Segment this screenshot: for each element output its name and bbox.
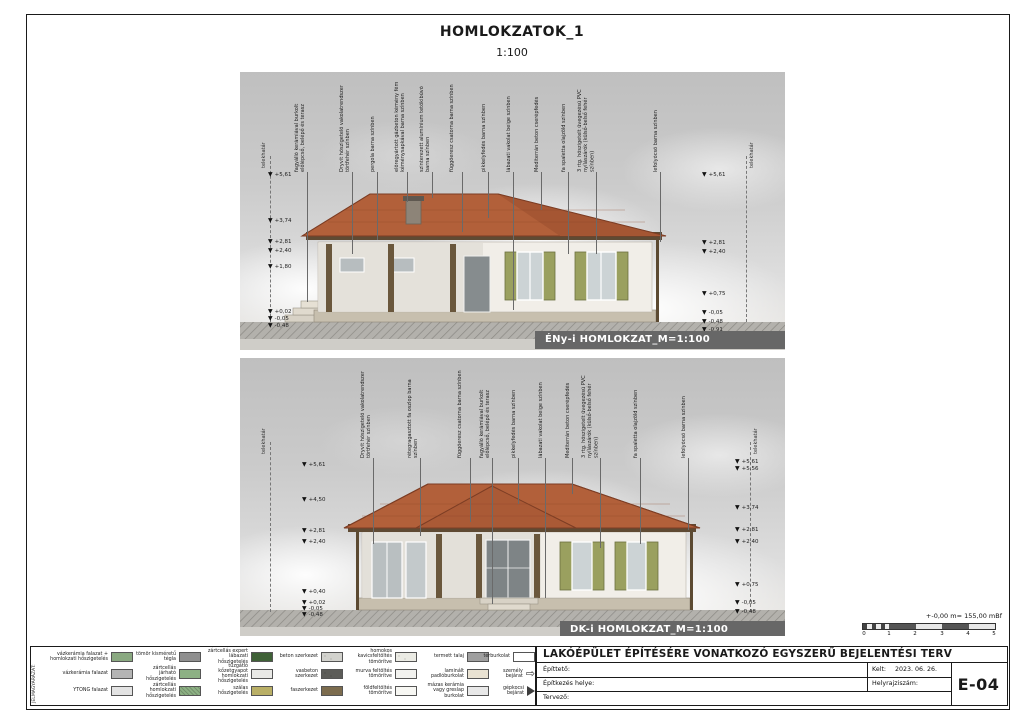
annotation-label: lábazati vakolat beige színben — [538, 364, 545, 458]
leader-line — [470, 458, 471, 522]
level-marker-icon: ▼ — [735, 609, 740, 615]
leader-line — [545, 458, 546, 598]
level-marker-icon: ▼ — [302, 612, 307, 618]
level-marker-icon: ▼ — [302, 589, 307, 595]
legend-swatch — [321, 669, 343, 679]
legend-item-label: termett talaj — [419, 654, 464, 659]
elevation-panel-eny: fagyálló kerámiával burkolt előlépcső, b… — [240, 72, 785, 350]
level-marker: ▼-0,48 — [302, 612, 323, 618]
legend-item: térburkolat — [491, 650, 535, 664]
level-marker: ▼+1,80 — [268, 264, 291, 270]
level-marker: ▼+2,40 — [735, 539, 758, 545]
legend-item: vázkerámia falazat — [39, 667, 133, 681]
legend-swatch — [251, 652, 273, 662]
legend-swatch — [111, 652, 133, 662]
legend-swatch — [321, 686, 343, 696]
leader-line — [432, 172, 433, 198]
annotation-label: lábazati vakolat beige színben — [506, 78, 513, 172]
level-marker-icon: ▼ — [702, 249, 707, 255]
annotation-label: Dryvit hőszigetelő vakolatrendszer törtf… — [339, 78, 352, 172]
level-marker: ▼+5,56 — [735, 466, 758, 472]
level-marker: ▼+2,81 — [302, 528, 325, 534]
legend-item-label: vázkerámia falazat + homlokzati hősziget… — [39, 652, 108, 662]
level-marker: ▼+3,74 — [268, 218, 291, 224]
annotation-label: fa spaletta olajzöld színben — [561, 78, 568, 172]
legend-item-label: gépkocsi bejárat — [491, 686, 524, 696]
level-marker-icon: ▼ — [268, 172, 273, 178]
legend-item: tömör kisméretű tégla — [135, 650, 201, 664]
level-marker-icon: ▼ — [702, 172, 707, 178]
leader-line — [600, 458, 601, 548]
annotation-label: szinterezett alumínium tetőkibúvó barna … — [419, 78, 432, 172]
legend-swatch — [513, 652, 535, 662]
annotation-label: fagyálló kerámiával burkolt előlépcső, b… — [294, 78, 307, 172]
level-marker: ▼+4,50 — [302, 497, 325, 503]
steps — [480, 598, 538, 610]
leader-line — [307, 172, 308, 302]
legend-item-label: vasbeton szerkezet — [275, 669, 318, 679]
legend-swatch — [395, 652, 417, 662]
level-marker-icon: ▼ — [302, 497, 307, 503]
property-line — [270, 442, 271, 612]
level-marker: ▼-0,48 — [735, 609, 756, 615]
legend-item-label: személy bejárat — [491, 669, 523, 679]
legend-item-label: homokos kavicsfeltöltés tömörítve — [345, 649, 392, 665]
level-marker-icon: ▼ — [268, 239, 273, 245]
legend-item: zártcellás homlokzati hőszigetelés — [135, 684, 201, 698]
leader-line — [373, 458, 374, 544]
legend-item-label: zártcellás expert lábazati hőszigetelés — [203, 649, 248, 665]
leader-line — [352, 172, 353, 254]
annotation-label: fagyálló kerámiával burkolt előlépcső, b… — [479, 364, 492, 458]
project-title: LAKÓÉPÜLET ÉPÍTÉSÉRE VONATKOZÓ EGYSZERŰ … — [537, 647, 1007, 663]
legend-item: YTONG falazat — [39, 684, 133, 698]
legend-item: faszerkezet — [275, 684, 343, 698]
legend-item-label: földfeltöltés tömörítve — [345, 686, 392, 696]
elevation-caption: ÉNy-i HOMLOKZAT_M=1:100 — [535, 331, 785, 349]
legend-item-label: faszerkezet — [275, 688, 318, 693]
level-marker: ▼+2,40 — [302, 539, 325, 545]
level-marker: ▼-0,48 — [268, 323, 289, 329]
level-marker: ▼-0,48 — [702, 319, 723, 325]
level-marker: ▼+2,40 — [268, 248, 291, 254]
scale-bar: +-0,00 m= 155,00 mBf 0 1 2 3 4 5 — [862, 612, 1002, 638]
legend-item: zártcellás expert lábazati hőszigetelés — [203, 650, 273, 664]
level-marker-icon: ▼ — [302, 462, 307, 468]
person-entrance-icon: ⇨ — [526, 669, 535, 679]
legend-item-label: laminált padlóburkolat — [419, 669, 464, 679]
downpipe — [656, 240, 659, 322]
field-label-kelt: Kelt: — [872, 666, 886, 673]
annotation-label: függőeresz csatorna barna színben — [457, 364, 470, 458]
level-marker-icon: ▼ — [735, 505, 740, 511]
level-marker: ▼+0,40 — [302, 589, 325, 595]
datum-note: +-0,00 m= 155,00 mBf — [862, 612, 1002, 620]
level-marker-icon: ▼ — [702, 310, 707, 316]
elevation-caption: DK-i HOMLOKZAT_M=1:100 — [560, 621, 785, 636]
level-marker: ▼+0,75 — [735, 582, 758, 588]
legend-swatch — [179, 669, 201, 679]
legend-item: mázas kerámia vagy greslap burkolat — [419, 684, 489, 698]
annotation-label: Mediterrán beton cserépfedés — [534, 78, 541, 172]
legend-item-label: tűzgátló kőzetgyapot homlokzati hősziget… — [203, 664, 248, 685]
level-marker: ▼-0,05 — [702, 310, 723, 316]
level-marker-icon: ▼ — [735, 527, 740, 533]
leader-line — [541, 172, 542, 210]
legend-item-label: zártcellás homlokzati hőszigetelés — [135, 683, 176, 699]
legend-item: földfeltöltés tömörítve — [345, 684, 417, 698]
legend-item: tűzgátló kőzetgyapot homlokzati hősziget… — [203, 667, 273, 681]
drawing-sheet: HOMLOKZATOK_1 1:100 — [0, 0, 1024, 724]
annotation-label: pikkelyfedés barna színben — [511, 364, 518, 458]
roof — [302, 194, 666, 240]
level-marker-icon: ▼ — [268, 218, 273, 224]
legend-swatch — [395, 686, 417, 696]
leader-line — [688, 458, 689, 530]
annotation-label: előregyártott gázbeton kémény fém kémény… — [394, 78, 407, 172]
level-marker-icon: ▼ — [302, 539, 307, 545]
legend-item: zártcellás járható hőszigetelés — [135, 667, 201, 681]
level-marker-icon: ▼ — [702, 319, 707, 325]
legend-item-label: szálas hőszigetelés — [203, 686, 248, 696]
title-block: LAKÓÉPÜLET ÉPÍTÉSÉRE VONATKOZÓ EGYSZERŰ … — [536, 646, 1008, 706]
leader-line — [488, 172, 489, 218]
leader-line — [420, 458, 421, 536]
leader-line — [660, 172, 661, 242]
leader-line — [462, 172, 463, 232]
annotation-label: lefolyócső barna színben — [653, 78, 660, 172]
legend-item: vasbeton szerkezet — [275, 667, 343, 681]
annotation-label: 3 rtg. hőszigetelt üvegezésű PVC nyílász… — [581, 364, 600, 458]
leader-line — [492, 458, 493, 604]
legend-item: murva feltöltés tömörítve — [345, 667, 417, 681]
level-marker: ▼+5,61 — [302, 462, 325, 468]
level-marker-icon: ▼ — [268, 323, 273, 329]
legend-item: beton szerkezet — [275, 650, 343, 664]
legend-swatch — [111, 669, 133, 679]
legend-item: szálas hőszigetelés — [203, 684, 273, 698]
level-marker-icon: ▼ — [735, 600, 740, 606]
legend-item-label: beton szerkezet — [275, 654, 318, 659]
property-line-label: telekhatár — [261, 134, 267, 168]
leader-line — [640, 458, 641, 544]
leader-line — [596, 172, 597, 254]
leader-line — [513, 172, 514, 310]
level-marker-icon: ▼ — [702, 291, 707, 297]
legend-swatch — [467, 669, 489, 679]
page-title: HOMLOKZATOK_1 — [0, 24, 1024, 40]
legend-item-label: zártcellás járható hőszigetelés — [135, 666, 176, 682]
level-marker: ▼+2,81 — [735, 527, 758, 533]
legend-swatch — [251, 686, 273, 696]
legend-item-label: YTONG falazat — [39, 688, 108, 693]
legend-item: gépkocsi bejárat — [491, 684, 535, 698]
property-line — [746, 156, 747, 322]
level-marker-icon: ▼ — [302, 528, 307, 534]
annotation-label: pikkelyfedés barna színben — [481, 78, 488, 172]
legend-swatch — [395, 669, 417, 679]
level-marker: ▼+3,74 — [735, 505, 758, 511]
level-marker: ▼+5,61 — [268, 172, 291, 178]
legend-swatch — [179, 686, 201, 696]
legend-item-label: vázkerámia falazat — [39, 671, 108, 676]
field-label-epitteto: Építtető: — [543, 666, 570, 673]
annotation-label: 3 rtg. hőszigetelt üvegezésű PVC nyílász… — [577, 78, 596, 172]
leader-line — [377, 172, 378, 240]
level-marker-icon: ▼ — [702, 240, 707, 246]
leader-line — [407, 172, 408, 202]
annotation-label: Mediterrán beton cserépfedés — [565, 364, 572, 458]
property-line-label: telekhatár — [261, 420, 267, 454]
legend-item-label: mázas kerámia vagy greslap burkolat — [419, 683, 464, 699]
level-marker: ▼+2,81 — [702, 240, 725, 246]
legend-item-label: térburkolat — [483, 654, 510, 659]
graphic-scale — [862, 623, 996, 630]
legend-swatch — [251, 669, 273, 679]
level-marker-icon: ▼ — [268, 248, 273, 254]
scale-ticks: 0 1 2 3 4 5 — [862, 630, 994, 638]
level-marker: ▼-0,05 — [735, 600, 756, 606]
field-label-helye: Építkezés helye: — [543, 680, 594, 687]
roof — [344, 484, 700, 532]
field-label-tervezo: Tervező: — [543, 694, 569, 701]
legend-heading: JELMAGYARÁZAT: — [32, 651, 37, 703]
field-value-kelt: 2023. 06. 26. — [895, 666, 937, 673]
page-scale: 1:100 — [0, 46, 1024, 59]
legend-item: vázkerámia falazat + homlokzati hősziget… — [39, 650, 133, 664]
annotation-label: függőeresz csatorna barna színben — [449, 78, 462, 172]
property-line-label: telekhatár — [753, 420, 759, 454]
annotation-label: rétegragasztott fa oszlop barna színben — [407, 364, 420, 458]
annotation-label: fa spaletta olajzöld színben — [633, 364, 640, 458]
legend-item-label: tömör kisméretű tégla — [135, 652, 176, 662]
level-marker: ▼+2,40 — [702, 249, 725, 255]
legend-swatch — [321, 652, 343, 662]
annotation-label: lefolyócső barna színben — [681, 364, 688, 458]
annotation-label: pergola barna színben — [370, 78, 377, 172]
legend-swatch — [111, 686, 133, 696]
level-marker-icon: ▼ — [735, 582, 740, 588]
legend-item: személy bejárat⇨ — [491, 667, 535, 681]
legend-swatch — [179, 652, 201, 662]
legend: JELMAGYARÁZAT: vázkerámia falazat + homl… — [30, 646, 536, 706]
leader-line — [572, 458, 573, 494]
legend-item-label: murva feltöltés tömörítve — [345, 669, 392, 679]
legend-item: laminált padlóburkolat — [419, 667, 489, 681]
level-marker: ▼+5,61 — [702, 172, 725, 178]
level-marker: ▼+0,75 — [702, 291, 725, 297]
leader-line — [518, 458, 519, 504]
legend-item: homokos kavicsfeltöltés tömörítve — [345, 650, 417, 664]
level-marker-icon: ▼ — [735, 539, 740, 545]
legend-item: termett talaj — [419, 650, 489, 664]
elevation-panel-dk: Dryvit hőszigetelő vakolatrendszer törtf… — [240, 358, 785, 636]
sheet-number: E-04 — [951, 663, 1006, 705]
property-line-label: telekhatár — [749, 134, 755, 168]
level-marker-icon: ▼ — [268, 264, 273, 270]
level-marker-icon: ▼ — [735, 466, 740, 472]
leader-line — [568, 172, 569, 254]
legend-swatch — [467, 686, 489, 696]
windows-left — [372, 542, 426, 598]
annotation-label: Dryvit hőszigetelő vakolatrendszer törtf… — [360, 364, 373, 458]
field-label-helyrajzi: Helyrajziszám: — [872, 680, 918, 687]
car-entrance-icon — [527, 686, 535, 696]
level-marker: ▼+2,81 — [268, 239, 291, 245]
